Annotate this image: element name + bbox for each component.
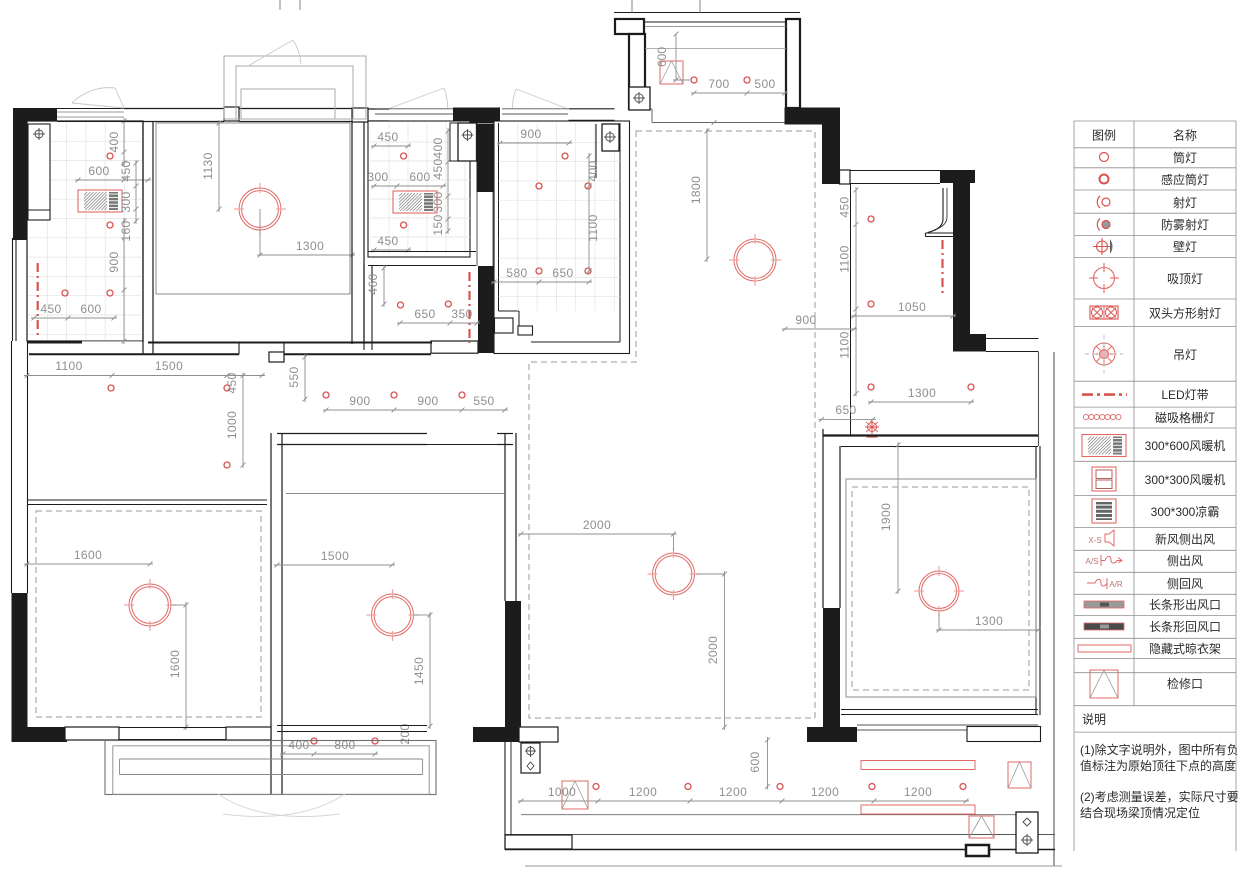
svg-text:1500: 1500 xyxy=(155,359,183,373)
svg-text:900: 900 xyxy=(795,313,816,327)
svg-text:550: 550 xyxy=(287,366,301,387)
svg-text:防雾射灯: 防雾射灯 xyxy=(1161,217,1209,232)
svg-text:460: 460 xyxy=(366,273,380,294)
svg-text:1300: 1300 xyxy=(296,239,324,253)
svg-text:结合现场梁顶情况定位: 结合现场梁顶情况定位 xyxy=(1080,805,1200,820)
svg-text:150: 150 xyxy=(431,214,445,235)
svg-text:900: 900 xyxy=(349,394,370,408)
svg-text:500: 500 xyxy=(754,77,775,91)
svg-text:A/R: A/R xyxy=(1109,580,1123,589)
svg-text:双头方形射灯: 双头方形射灯 xyxy=(1149,306,1221,321)
svg-text:650: 650 xyxy=(552,266,573,280)
svg-text:1000: 1000 xyxy=(225,411,239,439)
svg-text:1200: 1200 xyxy=(904,785,932,799)
svg-text:侧回风: 侧回风 xyxy=(1167,577,1203,591)
svg-text:(1)除文字说明外，图中所有负: (1)除文字说明外，图中所有负 xyxy=(1080,742,1239,757)
svg-text:600: 600 xyxy=(655,47,669,67)
svg-text:1100: 1100 xyxy=(55,359,82,373)
svg-text:400: 400 xyxy=(107,131,121,152)
svg-text:1100: 1100 xyxy=(838,245,852,272)
svg-text:600: 600 xyxy=(80,302,101,316)
svg-text:450: 450 xyxy=(431,158,445,179)
svg-text:长条形出风口: 长条形出风口 xyxy=(1149,598,1221,612)
svg-text:450: 450 xyxy=(377,130,398,144)
svg-text:A/S: A/S xyxy=(1086,557,1099,566)
svg-text:1100: 1100 xyxy=(586,214,600,241)
svg-text:吸顶灯: 吸顶灯 xyxy=(1167,272,1203,286)
svg-text:900: 900 xyxy=(107,251,121,272)
svg-text:射灯: 射灯 xyxy=(1173,195,1197,210)
svg-text:(2)考虑测量误差，实际尺寸要: (2)考虑测量误差，实际尺寸要 xyxy=(1080,789,1239,804)
svg-text:450: 450 xyxy=(377,234,398,248)
svg-text:1500: 1500 xyxy=(321,549,349,563)
svg-text:650: 650 xyxy=(835,403,856,417)
svg-text:侧出风: 侧出风 xyxy=(1167,554,1203,568)
svg-text:450: 450 xyxy=(225,372,239,393)
svg-text:450: 450 xyxy=(838,196,852,217)
svg-text:400: 400 xyxy=(586,160,600,181)
svg-text:1800: 1800 xyxy=(689,176,703,204)
svg-text:600: 600 xyxy=(748,751,762,772)
svg-text:1050: 1050 xyxy=(898,300,926,314)
svg-text:450: 450 xyxy=(119,160,133,181)
svg-text:1200: 1200 xyxy=(629,785,657,799)
svg-text:1000: 1000 xyxy=(548,785,576,799)
svg-text:2000: 2000 xyxy=(583,518,611,532)
svg-text:感应筒灯: 感应筒灯 xyxy=(1161,172,1209,187)
svg-text:1600: 1600 xyxy=(168,650,182,678)
svg-text:700: 700 xyxy=(708,77,729,91)
svg-text:1130: 1130 xyxy=(201,152,215,179)
svg-text:1100: 1100 xyxy=(838,331,852,358)
svg-text:新风侧出风: 新风侧出风 xyxy=(1155,532,1215,547)
svg-text:磁吸格栅灯: 磁吸格栅灯 xyxy=(1155,410,1215,425)
svg-text:图例: 图例 xyxy=(1092,129,1116,143)
svg-text:900: 900 xyxy=(520,127,541,141)
svg-text:400: 400 xyxy=(431,137,445,158)
svg-text:160: 160 xyxy=(119,220,133,241)
svg-text:名称: 名称 xyxy=(1173,128,1197,143)
svg-text:吊灯: 吊灯 xyxy=(1173,348,1197,362)
svg-text:900: 900 xyxy=(417,394,438,408)
svg-text:壁灯: 壁灯 xyxy=(1173,239,1197,254)
svg-text:1200: 1200 xyxy=(719,785,747,799)
svg-text:300: 300 xyxy=(367,170,388,184)
svg-text:300: 300 xyxy=(119,191,133,212)
svg-text:1200: 1200 xyxy=(811,785,839,799)
svg-text:350: 350 xyxy=(451,307,472,321)
svg-text:200: 200 xyxy=(398,723,412,744)
svg-text:值标注为原始顶往下点的高度: 值标注为原始顶往下点的高度 xyxy=(1080,758,1236,773)
svg-text:筒灯: 筒灯 xyxy=(1173,150,1197,165)
svg-text:检修口: 检修口 xyxy=(1167,676,1203,691)
svg-text:600: 600 xyxy=(88,164,109,178)
svg-text:2000: 2000 xyxy=(706,636,720,664)
svg-text:X-S: X-S xyxy=(1088,536,1101,545)
svg-text:长条形回风口: 长条形回风口 xyxy=(1149,620,1221,634)
svg-text:450: 450 xyxy=(40,302,61,316)
svg-text:650: 650 xyxy=(414,307,435,321)
svg-text:1450: 1450 xyxy=(412,657,426,685)
svg-text:1300: 1300 xyxy=(975,614,1003,628)
svg-text:隐藏式晾衣架: 隐藏式晾衣架 xyxy=(1149,641,1221,656)
svg-text:600: 600 xyxy=(409,170,430,184)
svg-text:1300: 1300 xyxy=(908,386,936,400)
svg-text:说明: 说明 xyxy=(1082,712,1106,727)
svg-text:300*300风暖机: 300*300风暖机 xyxy=(1145,473,1226,487)
svg-text:300*600风暖机: 300*600风暖机 xyxy=(1145,439,1226,453)
svg-text:580: 580 xyxy=(506,266,527,280)
svg-text:300: 300 xyxy=(431,191,445,212)
svg-text:LED灯带: LED灯带 xyxy=(1161,388,1208,402)
svg-text:1900: 1900 xyxy=(879,503,893,531)
svg-text:300*300凉霸: 300*300凉霸 xyxy=(1151,504,1220,519)
svg-text:1600: 1600 xyxy=(74,548,102,562)
svg-text:550: 550 xyxy=(473,394,494,408)
